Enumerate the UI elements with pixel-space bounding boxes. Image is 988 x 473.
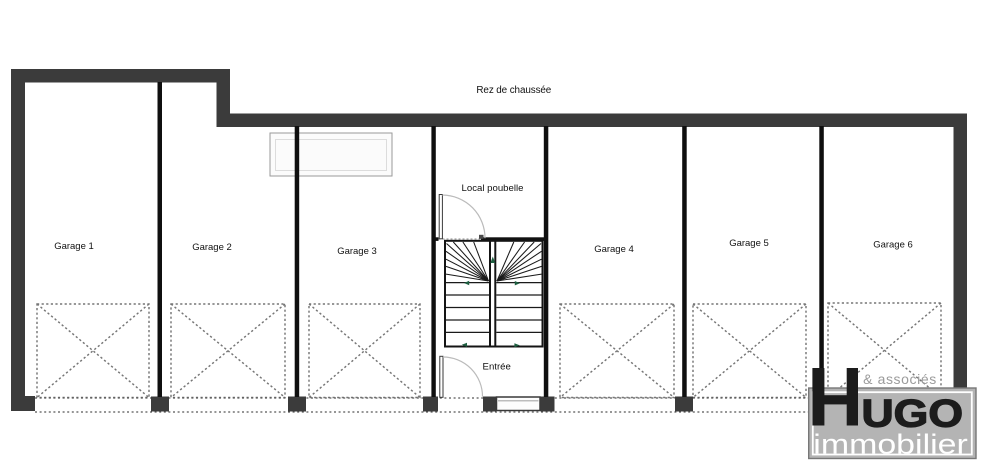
svg-text:immobilier: immobilier xyxy=(813,429,968,460)
svg-text:Garage 6: Garage 6 xyxy=(873,239,913,250)
svg-text:& associés: & associés xyxy=(863,371,937,387)
svg-text:Garage 3: Garage 3 xyxy=(337,246,377,257)
svg-text:Rez de chaussée: Rez de chaussée xyxy=(476,85,551,96)
svg-text:Garage 5: Garage 5 xyxy=(729,238,769,249)
svg-text:Garage 4: Garage 4 xyxy=(594,244,634,255)
svg-text:Garage 2: Garage 2 xyxy=(192,242,232,253)
svg-text:Garage 1: Garage 1 xyxy=(54,241,94,252)
svg-text:Entrée: Entrée xyxy=(483,361,511,372)
svg-text:Local poubelle: Local poubelle xyxy=(462,183,524,194)
